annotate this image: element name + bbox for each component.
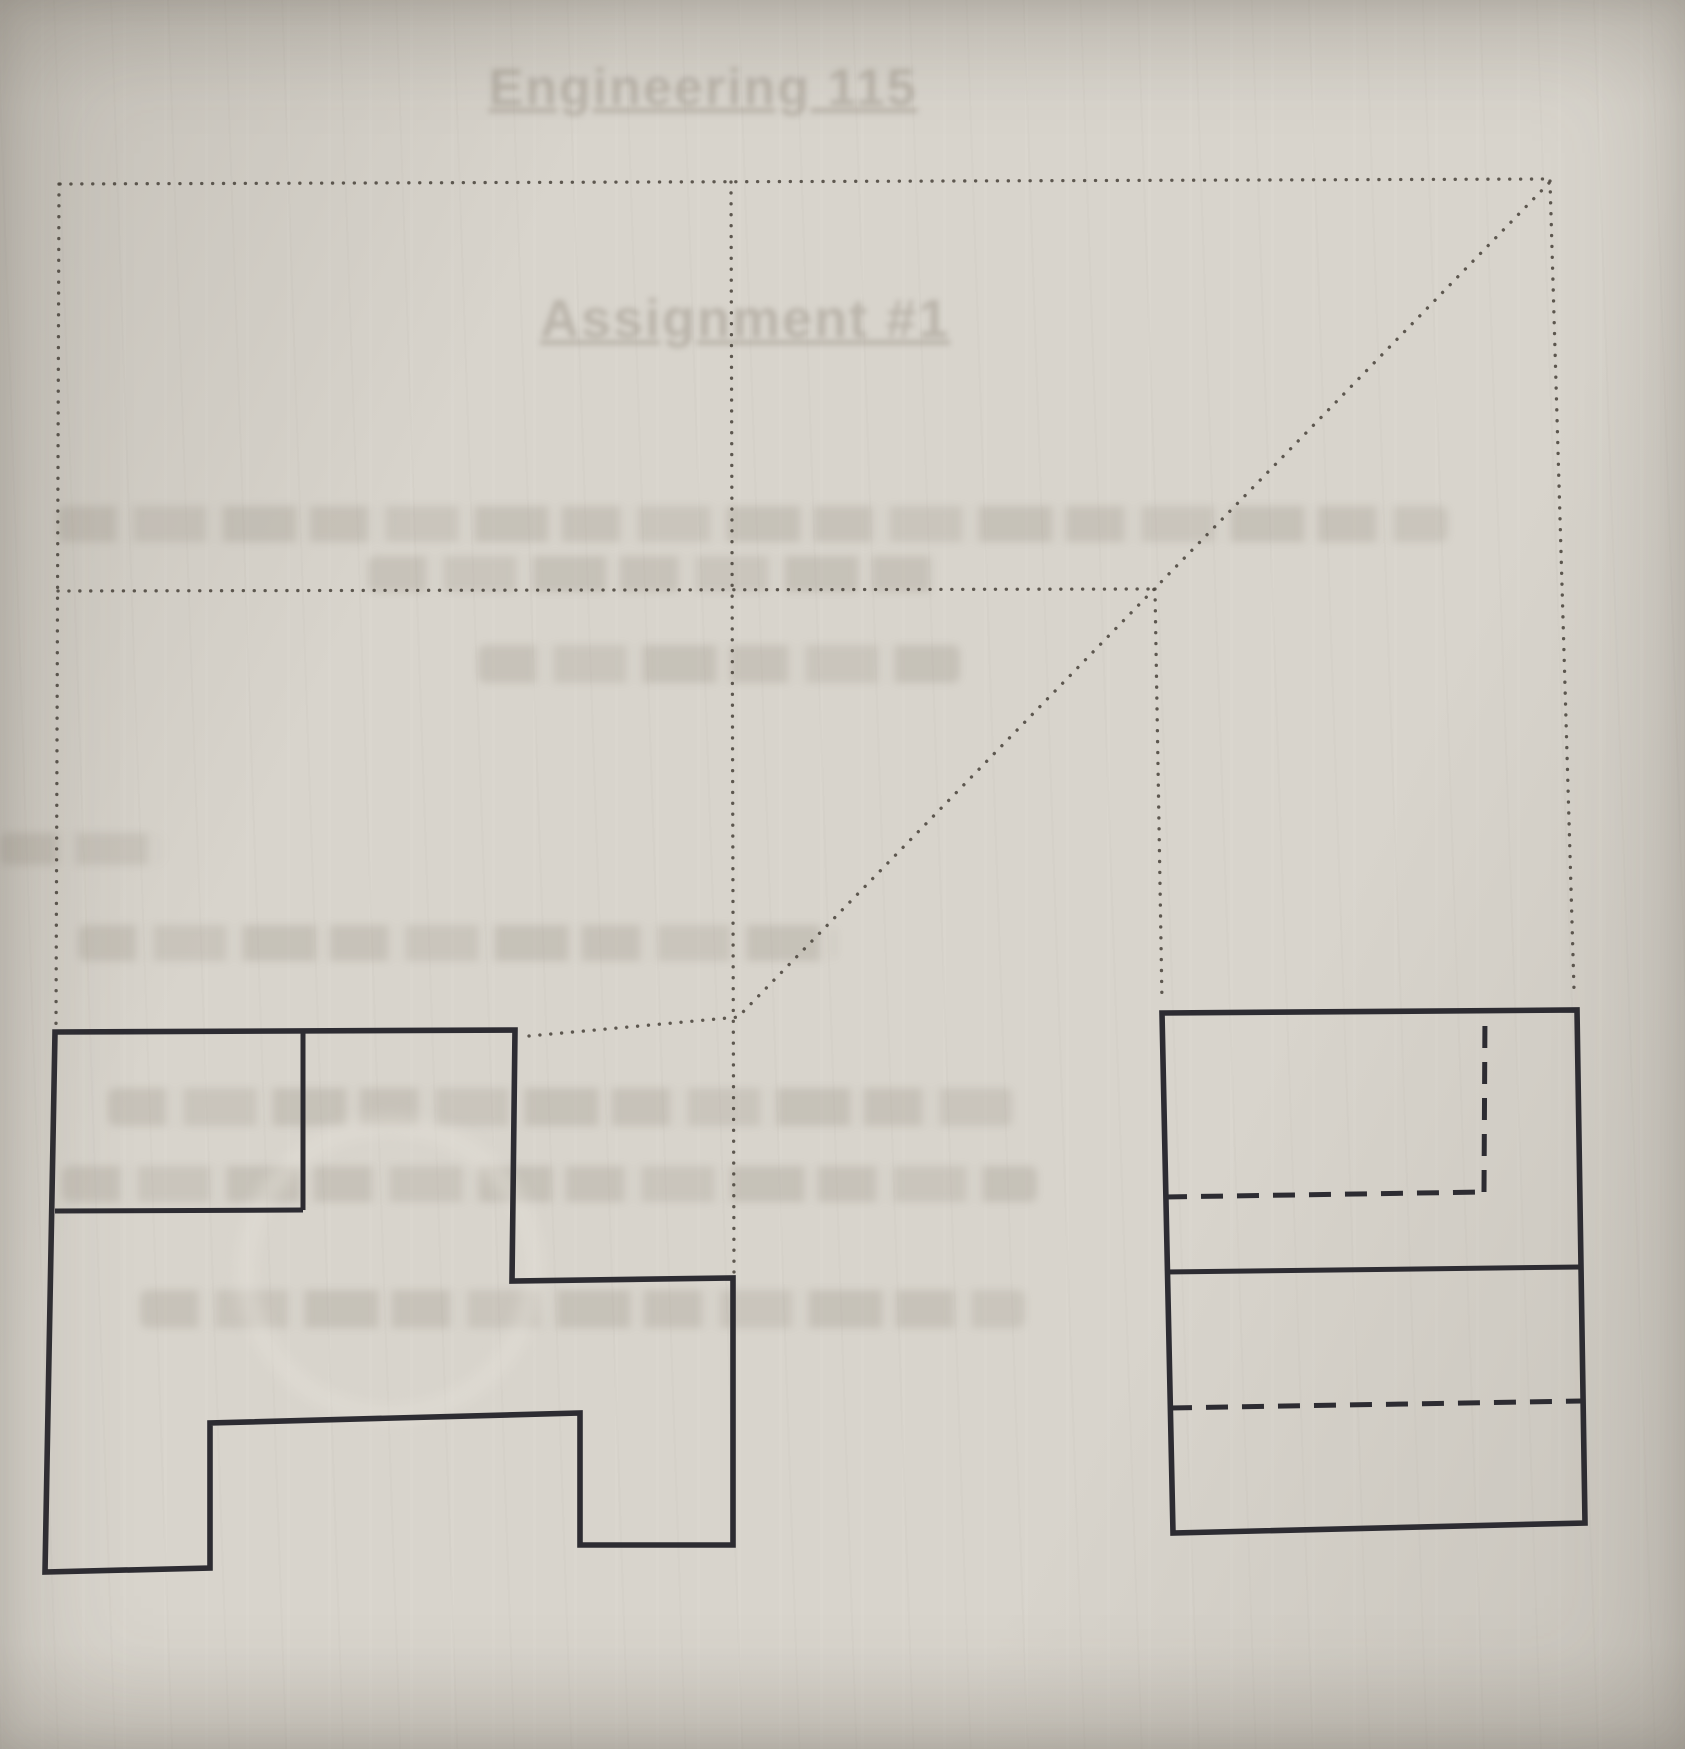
construction-miter-diagonal <box>742 183 1549 1013</box>
construction-front-top-projection <box>529 1017 739 1036</box>
orthographic-projection-drawing <box>0 0 1685 1749</box>
construction-right-vertical <box>1550 181 1574 989</box>
front-view-outline <box>45 1030 733 1572</box>
side-view-hidden-lower-horizontal <box>1170 1401 1581 1408</box>
side-view-mid-horizontal <box>1165 1267 1581 1272</box>
construction-top-horizontal <box>60 179 1549 184</box>
front-view-inner-horizontal <box>55 1210 303 1211</box>
construction-mid-horizontal <box>58 589 1154 591</box>
side-view-hidden-vertical <box>1484 1012 1485 1192</box>
construction-center-vertical <box>731 182 734 1272</box>
side-view-hidden-upper-horizontal <box>1165 1192 1484 1197</box>
construction-left-vertical <box>56 184 59 1024</box>
photo-paper: Engineering 115 Assignment #1 <box>0 0 1685 1749</box>
construction-side-projection-vertical <box>1155 589 1162 1002</box>
